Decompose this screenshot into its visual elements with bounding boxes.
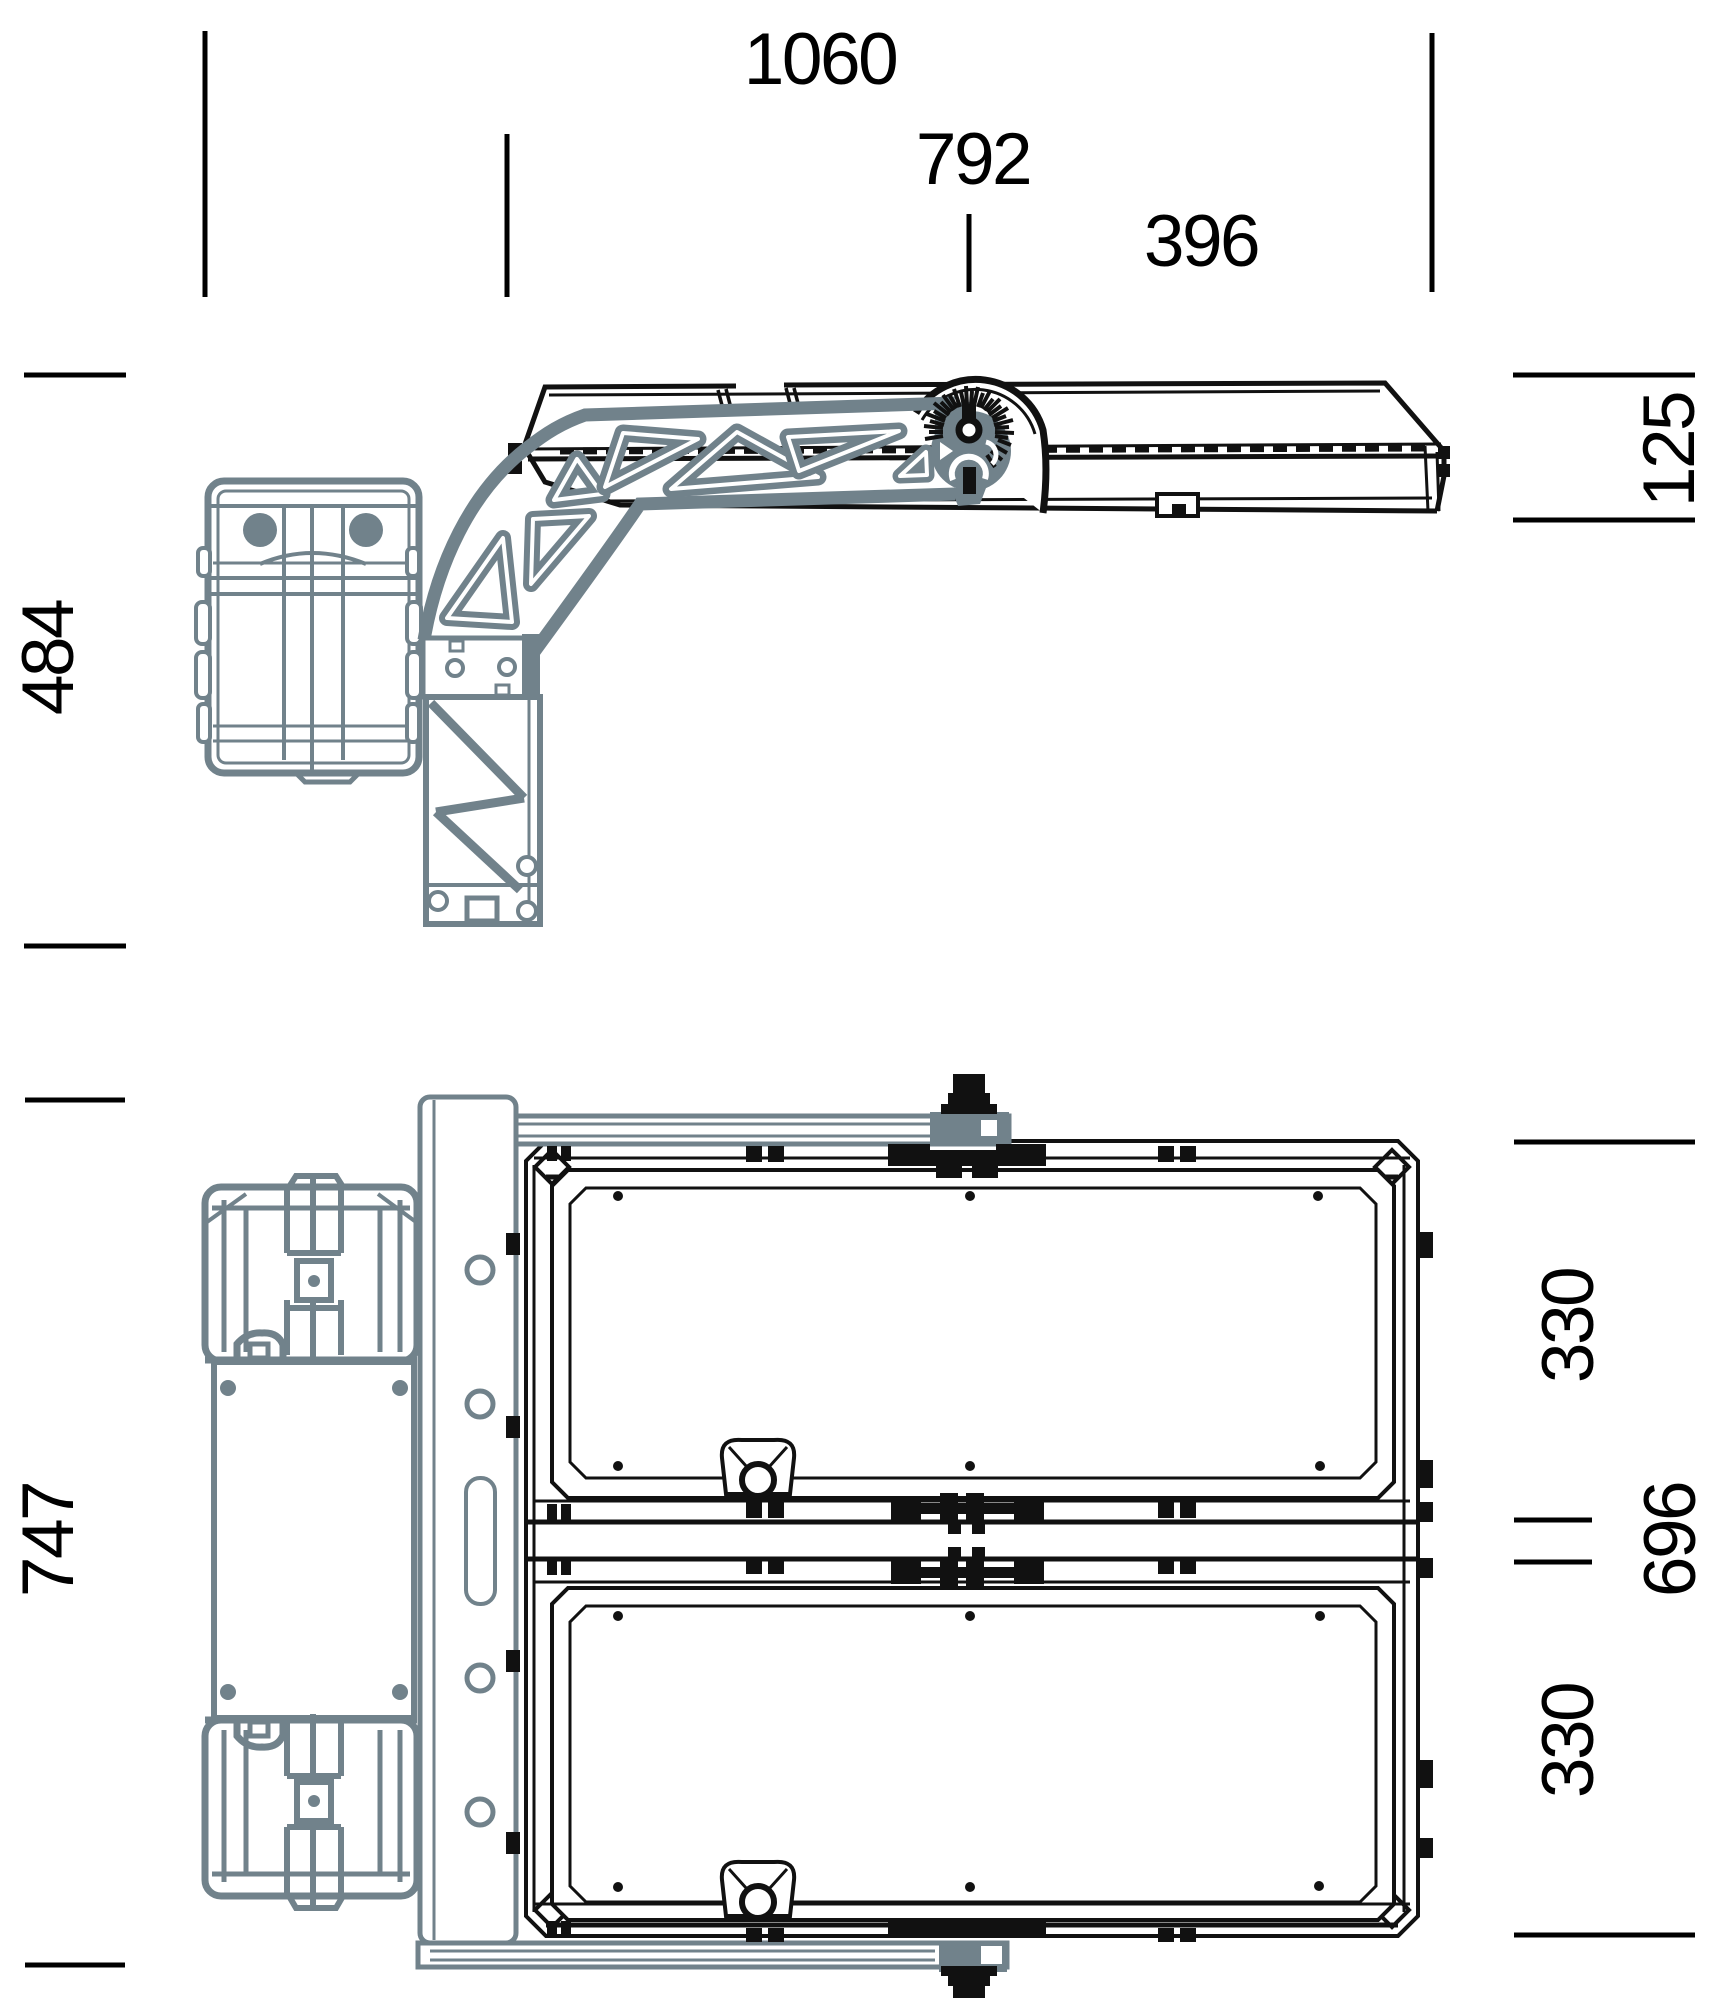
svg-text:396: 396 [1144, 201, 1258, 282]
svg-text:696: 696 [1630, 1483, 1711, 1597]
svg-text:747: 747 [8, 1483, 89, 1597]
svg-text:792: 792 [916, 119, 1030, 200]
svg-text:1060: 1060 [744, 19, 896, 100]
svg-text:330: 330 [1528, 1684, 1609, 1798]
svg-text:330: 330 [1528, 1269, 1609, 1383]
svg-text:484: 484 [8, 600, 89, 715]
svg-text:125: 125 [1629, 393, 1710, 507]
